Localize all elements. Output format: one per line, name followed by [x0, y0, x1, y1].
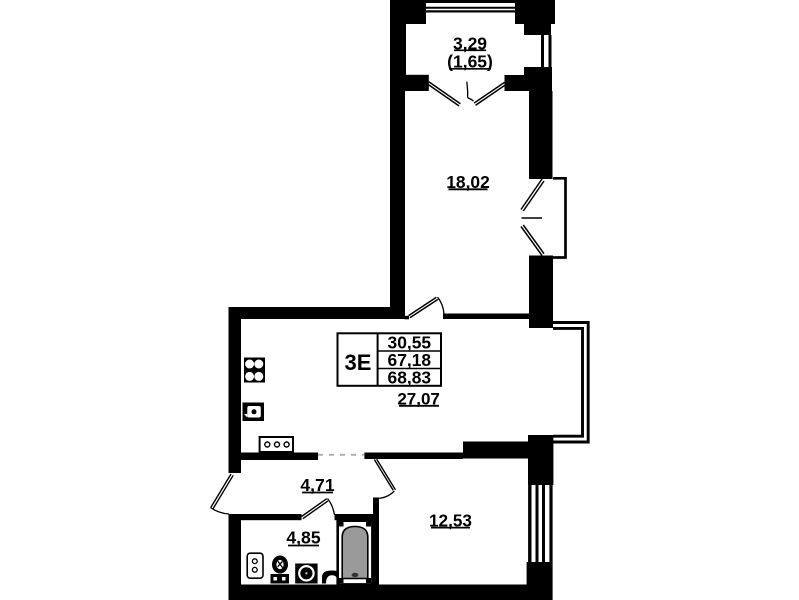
svg-text:3E: 3E	[345, 350, 372, 375]
svg-text:68,83: 68,83	[388, 367, 432, 387]
